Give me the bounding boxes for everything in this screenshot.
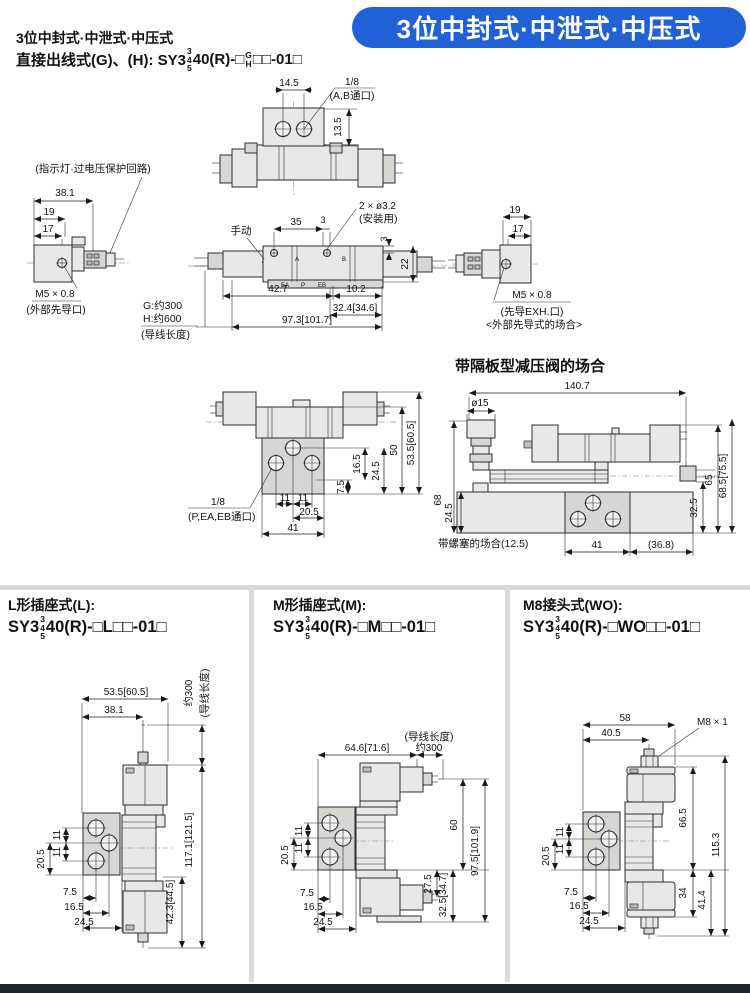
stack-345: 345 <box>40 615 45 641</box>
dim-66-5: 66.5 <box>678 808 689 828</box>
dim-97-3: 97.3[101.7] <box>282 315 332 326</box>
port-eb-label: EB <box>318 283 326 289</box>
panel-m-heading: M形插座式(M): SY3 345 40(R)-□M□□-01□ <box>273 595 435 641</box>
horizontal-divider <box>0 585 750 590</box>
dim-24-5: 24.5 <box>74 917 94 928</box>
dim-19: 19 <box>43 207 55 218</box>
dim-42-7: 42.7 <box>268 284 288 295</box>
dim-24-5: 24.5 <box>313 917 333 928</box>
m-valve-body <box>318 763 445 922</box>
dim-14-5: 14.5 <box>279 78 299 89</box>
dim-11b: 11 <box>555 843 566 854</box>
dim-11b: 11 <box>52 846 63 857</box>
dim-24-5: 24.5 <box>444 503 455 523</box>
right-side-view-drawing: 19 17 M5 × 0.8 (先导EXH.口) <外部先导式的场合> <box>440 186 625 354</box>
section-banner: 3位中封式·中泄式·中压式 <box>352 7 746 48</box>
dim-24-5: 24.5 <box>579 916 599 927</box>
dim-3-right: 3 <box>379 236 389 241</box>
dim-24-5: 24.5 <box>371 461 382 481</box>
dim-140-7: 140.7 <box>564 381 589 392</box>
model-prefix: SY3 <box>273 618 304 637</box>
dim-20-5: 20.5 <box>280 845 291 865</box>
dim-38-1: 38.1 <box>55 188 75 199</box>
dim-40-5: 40.5 <box>601 728 621 739</box>
dim-64-6: 64.6[71.6] <box>345 743 390 754</box>
model-suffix: 40(R)-□L□□-01□ <box>46 618 167 637</box>
left-side-view-drawing: (指示灯·过电压保护回路) 38.1 19 17 <box>5 158 200 343</box>
panel-l-title: L形插座式(L): <box>8 595 166 615</box>
dim-60: 60 <box>449 819 460 831</box>
dim-17: 17 <box>42 224 54 235</box>
dim-117-1: 117.1[121.5] <box>184 812 195 867</box>
port-size-label: 1/8 <box>345 77 359 88</box>
section2-front-drawing: 7.5 16.5 24.5 50 53.5[60.5] 11 11 20.5 4 <box>188 358 438 563</box>
dim-50: 50 <box>389 444 400 456</box>
dim-68: 68 <box>433 494 444 506</box>
panel-wo-heading: M8接头式(WO): SY3 345 40(R)-□WO□□-01□ <box>523 595 700 641</box>
indicator-note: (指示灯·过电压保护回路) <box>35 162 151 175</box>
panel-wo-title: M8接头式(WO): <box>523 595 700 615</box>
dim-11a: 11 <box>52 829 63 840</box>
bottom-bar <box>0 984 750 993</box>
dim-36-8: (36.8) <box>648 540 674 551</box>
wire-length-note: (导线长度) <box>198 669 211 718</box>
pilot-port-note: (外部先导口) <box>26 303 86 316</box>
wire-length: 约300 <box>182 679 195 706</box>
wire-length: 约300 <box>416 741 443 754</box>
dim-34: 34 <box>678 887 689 899</box>
model-suffix: □□-01□ <box>253 51 302 68</box>
dim-41: 41 <box>287 523 299 534</box>
dim-7-5: 7.5 <box>63 887 77 898</box>
valve-top-view <box>212 101 403 195</box>
dim-32-5: 32.5[34.7] <box>438 873 449 918</box>
dim-32-5: 32.5 <box>689 498 700 518</box>
panel-l-model: SY3 345 40(R)-□L□□-01□ <box>8 615 166 641</box>
plug-case-note: 带螺塞的场合(12.5) <box>438 537 528 550</box>
dim-27-5: 27.5 <box>423 874 434 894</box>
dim-7-5: 7.5 <box>300 888 314 899</box>
dim-11a: 11 <box>280 493 291 504</box>
panel-m-title: M形插座式(M): <box>273 595 435 615</box>
model-prefix: 直接出线式(G)、(H): SY3 <box>16 49 186 70</box>
model-suffix: 40(R)-□M□□-01□ <box>311 618 435 637</box>
wo-valve-body <box>583 749 675 939</box>
l-valve-body <box>83 725 174 948</box>
l-plug-drawing: 53.5[60.5] 38.1 约300 (导线长度) 117.1[121.5]… <box>22 655 257 967</box>
dim-7-5: 7.5 <box>336 480 347 494</box>
stack-345: 3 4 5 <box>187 47 192 73</box>
dim-38-1: 38.1 <box>104 705 124 716</box>
dim-115-3: 115.3 <box>711 832 722 857</box>
model-prefix: SY3 <box>523 618 554 637</box>
stack-h: H <box>246 60 252 69</box>
mounting-hole-label: 2 × ø3.2 <box>359 201 396 212</box>
stack-5: 5 <box>187 64 192 73</box>
pilot-thread-label: M5 × 0.8 <box>35 289 75 300</box>
port-a-label: A <box>295 257 299 263</box>
section2-regulator-drawing: 140.7 ø15 68 24.5 32.5 65 68.5[75.5] 带螺塞… <box>435 370 750 570</box>
m8-connector-drawing: 58 40.5 M8 × 1 <box>533 655 748 967</box>
dim-11b: 11 <box>298 493 309 504</box>
panel-wo-model: SY3 345 40(R)-□WO□□-01□ <box>523 615 700 641</box>
dim-53-5: 53.5[60.5] <box>406 421 417 466</box>
pilot-exh-thread: M5 × 0.8 <box>512 290 552 301</box>
dim-13-5: 13.5 <box>333 117 344 137</box>
dim-65: 65 <box>704 474 715 486</box>
m-plug-drawing: (导线长度) 约300 64.6[71.6] <box>283 655 508 967</box>
dim-97-5: 97.5[101.9] <box>470 826 481 876</box>
valve-right-view <box>448 245 538 283</box>
panel-m-model: SY3 345 40(R)-□M□□-01□ <box>273 615 435 641</box>
dim-68-5: 68.5[75.5] <box>718 454 729 499</box>
valve-front-view: A B EA P EB <box>188 246 456 289</box>
dim-16-5: 16.5 <box>303 902 323 913</box>
dim-35: 35 <box>290 217 302 228</box>
dim-20-5: 20.5 <box>299 507 319 518</box>
stack-345: 345 <box>555 615 560 641</box>
left-view-dimensions: (指示灯·过电压保护回路) 38.1 19 17 <box>34 162 151 257</box>
dim-20-5: 20.5 <box>36 849 47 869</box>
dim-58: 58 <box>619 713 631 724</box>
wire-length-note: (导线长度) <box>405 730 454 743</box>
dim-16-5: 16.5 <box>352 454 363 474</box>
dim-11b: 11 <box>294 842 305 853</box>
panel-l-heading: L形插座式(L): SY3 345 40(R)-□L□□-01□ <box>8 595 166 641</box>
stack-gh: G H <box>245 51 252 68</box>
dim-41-4: 41.4 <box>697 890 708 910</box>
dim-3-top: 3 <box>320 215 325 225</box>
port-size-label: 1/8 <box>211 497 225 508</box>
dim-41: 41 <box>591 540 603 551</box>
external-pilot-case-note: <外部先导式的场合> <box>486 318 582 331</box>
mounting-note: (安装用) <box>359 212 398 225</box>
port-b-label: B <box>342 257 346 263</box>
dim-16-5: 16.5 <box>64 902 84 913</box>
page-subtitle: 3位中封式·中泄式·中压式 <box>16 28 173 48</box>
stack-345: 345 <box>305 615 310 641</box>
model-suffix: 40(R)-□WO□□-01□ <box>561 618 700 637</box>
model-prefix: SY3 <box>8 618 39 637</box>
manual-override-label: 手动 <box>231 224 252 237</box>
dim-22: 22 <box>400 258 411 270</box>
dim-20-5: 20.5 <box>541 846 552 866</box>
catalog-page: 3位中封式·中泄式·中压式 直接出线式(G)、(H): SY3 3 4 5 40… <box>0 0 750 993</box>
regulator-valve-assembly <box>457 420 723 533</box>
dim-7-5: 7.5 <box>564 887 578 898</box>
dim-11a: 11 <box>294 825 305 836</box>
model-mid: 40(R)-□ <box>193 51 245 68</box>
dim-32-4: 32.4[34.6] <box>333 303 378 314</box>
port-note-label: (P,EA,EB通口) <box>188 511 256 523</box>
m8-thread-label: M8 × 1 <box>697 717 728 728</box>
dim-53-5: 53.5[60.5] <box>104 687 149 698</box>
port-note-label: (A,B通口) <box>330 90 375 102</box>
top-view-drawing: 14.5 1/8 (A,B通口) 13.5 <box>185 73 475 205</box>
dim-17: 17 <box>512 224 524 235</box>
front-view-drawing: A B EA P EB 手动 35 3 2 × ø3.2 (安装用) 3 22 … <box>172 196 467 346</box>
dim-10-2: 10.2 <box>346 284 366 295</box>
dim-11a: 11 <box>555 826 566 837</box>
port-p-label: P <box>301 283 305 289</box>
dim-16-5: 16.5 <box>569 901 589 912</box>
knob-dia-label: ø15 <box>471 398 489 409</box>
dim-42-3: 42.3[44.5] <box>165 880 176 925</box>
pilot-exh-note: (先导EXH.口) <box>501 306 564 318</box>
model-number-line: 直接出线式(G)、(H): SY3 3 4 5 40(R)-□ G H □□-0… <box>16 47 302 73</box>
dim-19: 19 <box>509 205 521 216</box>
